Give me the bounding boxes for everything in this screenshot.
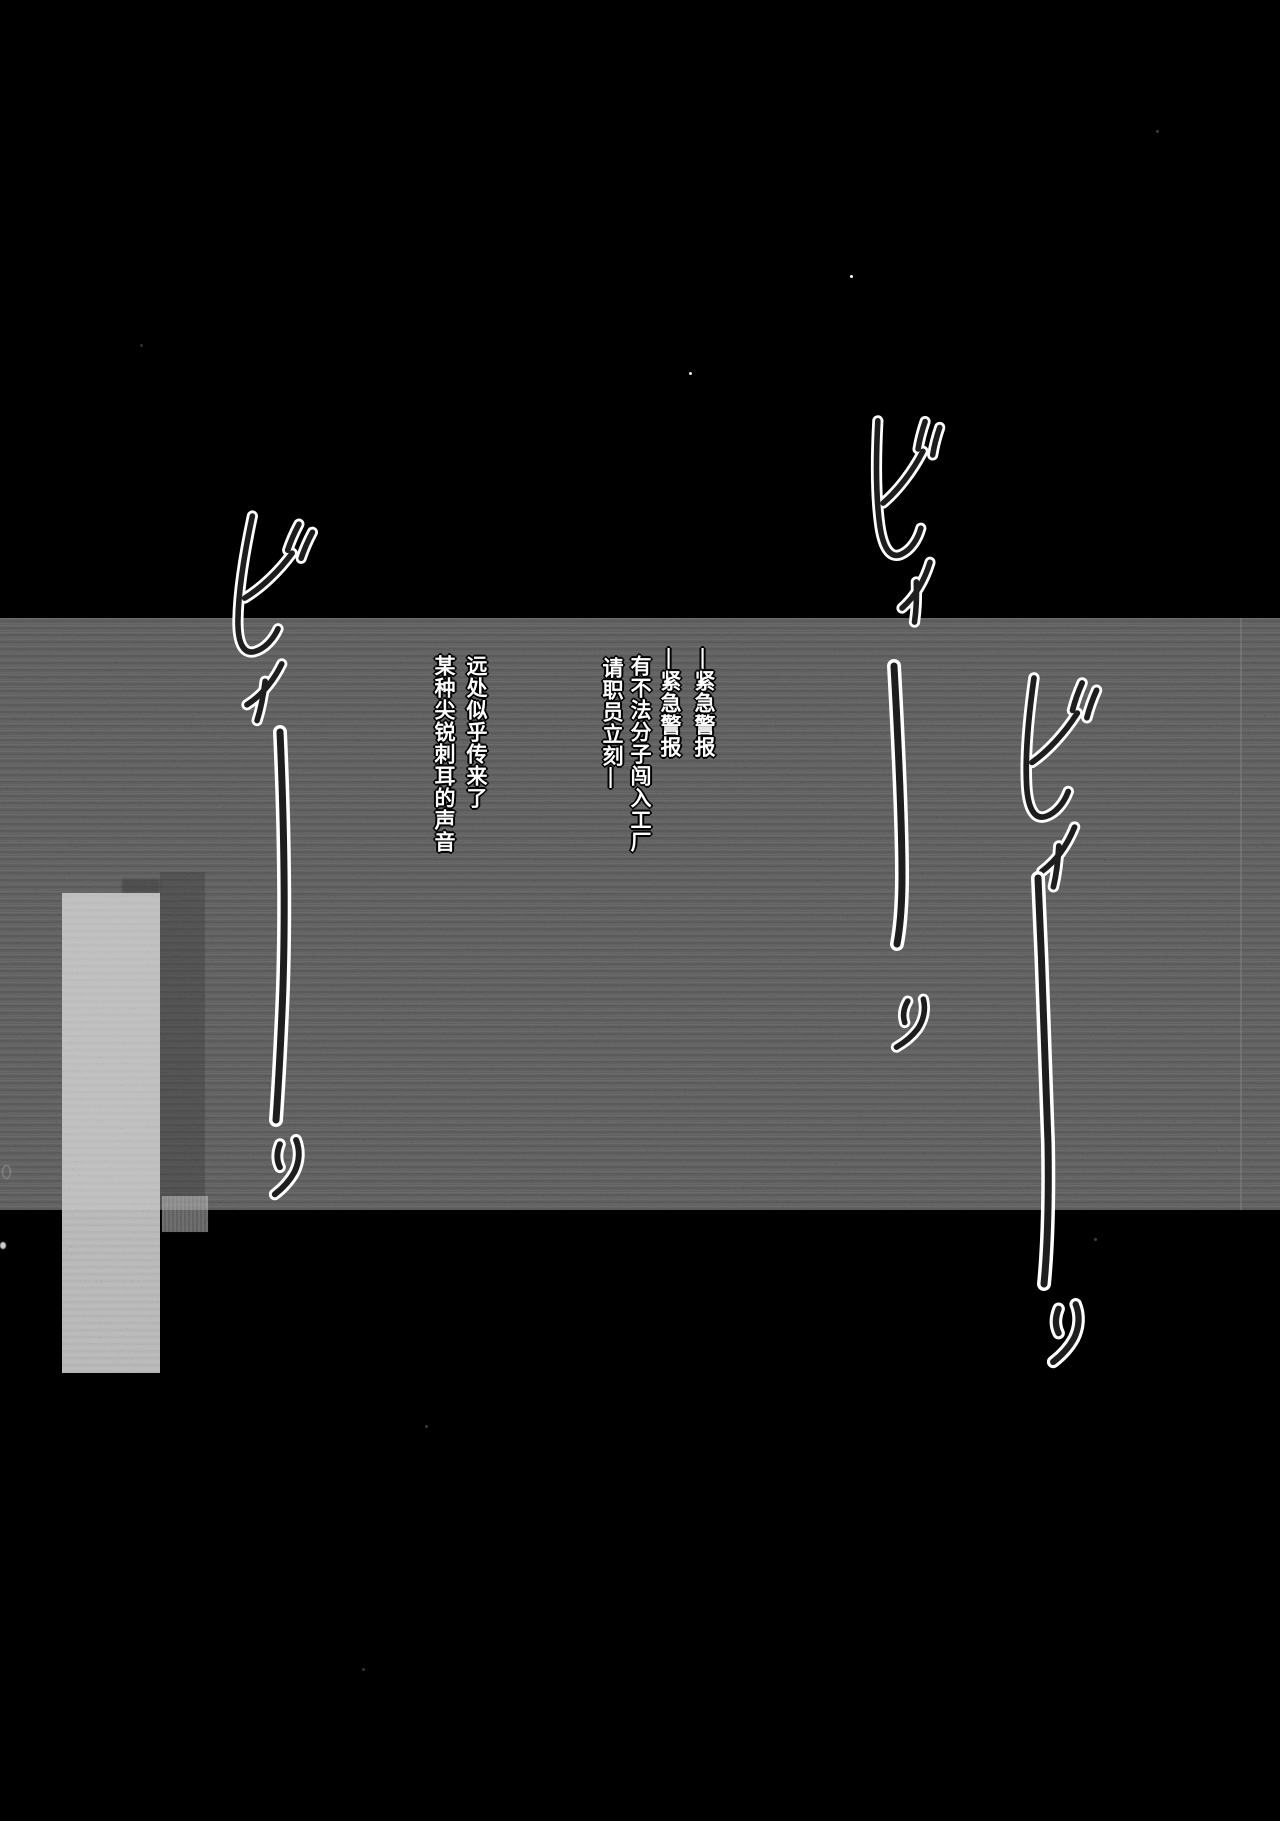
film-speck (689, 372, 692, 375)
dialogue-column-4: 请职员立刻— (596, 657, 626, 789)
dialogue-column-5: 远处似乎传来了 (460, 655, 490, 809)
page-edge-mark (2, 1165, 11, 1179)
film-speck (850, 275, 853, 278)
sfx-alarm-upper-right (836, 398, 966, 1078)
film-speck (140, 344, 143, 347)
dialogue-column-6: 某种尖锐刺耳的声音 (428, 655, 458, 853)
dialogue-column-2: —紧急警报 (654, 648, 684, 758)
band-seam-line (1240, 618, 1242, 1210)
film-speck (425, 1425, 428, 1428)
shadow-line (122, 879, 160, 893)
highlight-block (62, 893, 160, 1373)
sfx-alarm-right (986, 658, 1116, 1388)
dialogue-column-3: 有不法分子闯入工厂 (624, 655, 654, 853)
sfx-alarm-left (196, 492, 346, 1222)
film-speck (1156, 130, 1159, 133)
film-speck (362, 1668, 365, 1671)
manga-page: —紧急警报 —紧急警报 有不法分子闯入工厂 请职员立刻— 远处似乎传来了 某种尖… (0, 0, 1280, 1821)
page-edge-mark (0, 1242, 6, 1249)
dialogue-column-1: —紧急警报 (688, 648, 718, 758)
